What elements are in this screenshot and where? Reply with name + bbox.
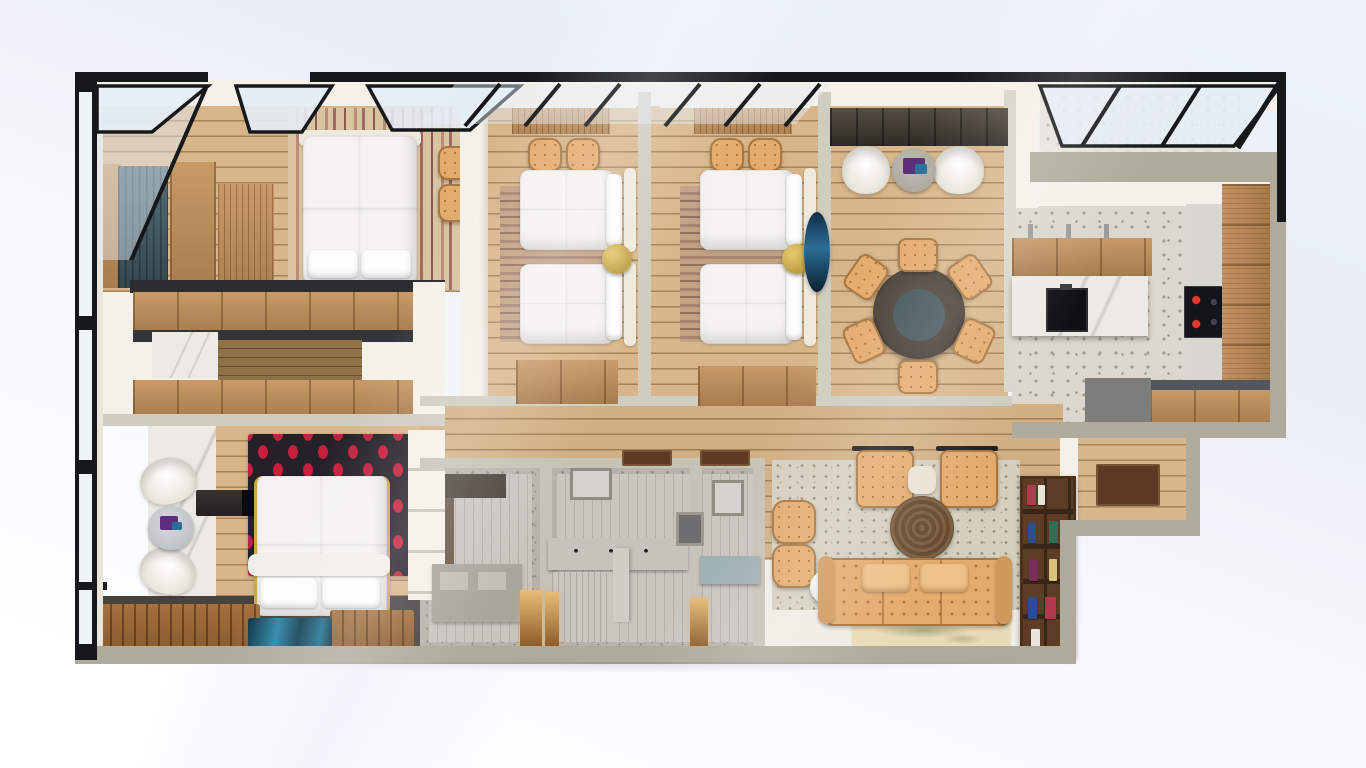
book [1029, 559, 1038, 581]
bed-headboard [624, 168, 636, 252]
coffee-machine [1046, 288, 1088, 332]
door-threshold [545, 592, 559, 648]
door-mat [622, 450, 672, 466]
induction-cooktop [1184, 286, 1226, 338]
slat-bench [330, 610, 414, 648]
wall [753, 458, 765, 650]
vanity-partition [613, 548, 629, 622]
hanging-chair [804, 212, 830, 292]
window-glass [79, 92, 92, 316]
table-decor [172, 522, 182, 530]
wardrobe-row [133, 292, 413, 332]
single-bed [700, 170, 794, 250]
wardrobe [516, 360, 618, 404]
terrace-wall-band [1030, 152, 1276, 182]
bed-pillow [308, 250, 358, 278]
wall [95, 414, 445, 426]
gold-nightstand [602, 244, 632, 274]
floor-plan-render [0, 0, 1366, 768]
lounge-chair [940, 450, 998, 508]
wardrobe [698, 366, 816, 406]
jute-rug [890, 496, 954, 560]
wardrobe [170, 162, 216, 290]
counter [1186, 204, 1222, 286]
dining-table-top [893, 289, 945, 341]
ottoman [908, 466, 936, 494]
wardrobe [218, 184, 274, 290]
wardrobe-row [133, 380, 413, 418]
stool [528, 138, 562, 172]
slat-bench [98, 604, 260, 648]
book [1028, 597, 1037, 619]
stool [710, 138, 744, 172]
teal-cabinet [118, 166, 168, 288]
dining-chair [898, 238, 938, 272]
kitchen-gray-mat [1085, 378, 1151, 422]
single-bed [520, 170, 614, 250]
stool [566, 138, 600, 172]
shower-floor [552, 572, 612, 642]
single-bed [520, 264, 614, 344]
building-shadow [80, 662, 1200, 678]
console-table [830, 108, 1008, 146]
closet-walkway [218, 340, 362, 380]
bed-headboard [624, 262, 636, 346]
coffee-machine-knob [1060, 284, 1072, 290]
stool [748, 138, 782, 172]
lower-cabinets [1150, 390, 1272, 424]
wall [638, 92, 651, 406]
book [1028, 523, 1036, 543]
wall-edge [97, 110, 103, 646]
book [1038, 485, 1045, 505]
blue-rug [248, 618, 332, 648]
sofa-pillow [920, 564, 968, 592]
bathroom-window [712, 480, 744, 516]
vanity [700, 556, 760, 584]
bed-crossbar [248, 554, 390, 576]
room-floor [1040, 90, 1240, 156]
desk [512, 108, 610, 134]
bed-pillow [606, 268, 622, 340]
outer-wall [1270, 152, 1286, 438]
book [1045, 597, 1056, 619]
outer-wall [1060, 536, 1076, 652]
armchair [934, 146, 984, 194]
bed-pillow [786, 174, 802, 246]
marble-tile [152, 332, 218, 378]
table-decor [915, 164, 927, 174]
sofa-armrest [818, 556, 834, 624]
book [1027, 485, 1036, 505]
sink [478, 572, 506, 590]
armchair [842, 146, 890, 194]
bed-pillow [361, 250, 411, 278]
bed-pillow [606, 174, 622, 246]
sofa-pillow [862, 564, 910, 592]
bed-pillow [260, 578, 318, 608]
door-threshold [690, 598, 708, 648]
window-glass [79, 330, 92, 460]
kitchen-island-wood [1012, 238, 1152, 276]
book [1031, 629, 1040, 647]
bed-pillow [322, 578, 380, 608]
outer-wall [1060, 520, 1200, 536]
outer-wall [1012, 422, 1286, 438]
tufted-sofa [824, 558, 1010, 626]
pouf [772, 500, 816, 544]
door-mat [700, 450, 750, 466]
desk [694, 108, 792, 134]
book [1049, 559, 1057, 581]
entry-mat [1096, 464, 1160, 506]
bathroom-window [570, 468, 612, 500]
window-sill [490, 98, 636, 108]
bed-pillow [786, 268, 802, 340]
wall [460, 92, 488, 406]
window-sill [660, 98, 810, 108]
pouf [772, 544, 816, 588]
counter-dark-top [1150, 380, 1272, 390]
door-threshold [520, 590, 542, 648]
book [1049, 521, 1058, 543]
sink [440, 572, 468, 590]
sofa-armrest [996, 556, 1012, 624]
bathroom-mirror [676, 512, 704, 546]
dining-chair [898, 360, 938, 394]
window-glass [79, 474, 92, 644]
single-bed [700, 264, 794, 344]
